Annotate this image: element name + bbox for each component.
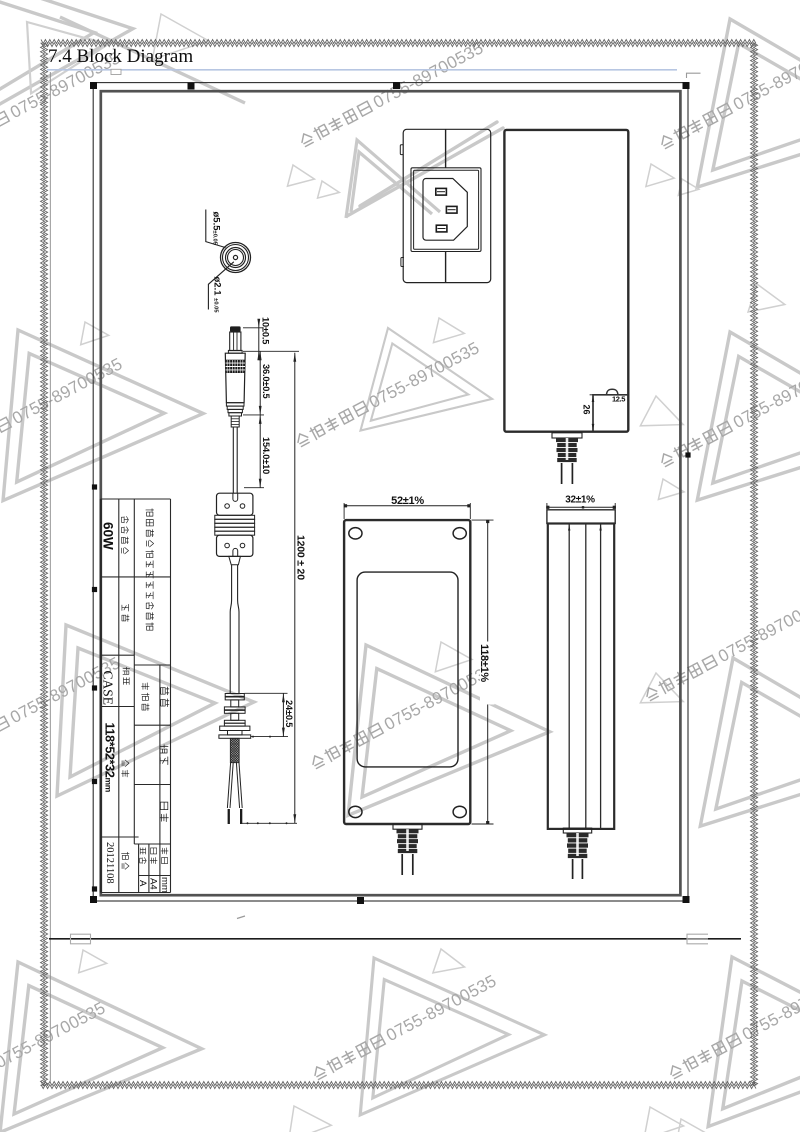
svg-text:7.4 Block Diagram: 7.4 Block Diagram xyxy=(48,46,193,67)
svg-text:1200 ± 20: 1200 ± 20 xyxy=(295,535,307,580)
svg-text:20121108: 20121108 xyxy=(104,842,115,884)
svg-text:A4: A4 xyxy=(148,878,159,890)
svg-text:12.5: 12.5 xyxy=(612,395,625,404)
svg-text:26: 26 xyxy=(582,405,592,415)
svg-text:154.0±10: 154.0±10 xyxy=(261,437,271,474)
svg-text:24±0.5: 24±0.5 xyxy=(284,700,294,727)
svg-text:60W: 60W xyxy=(101,522,116,550)
svg-text:118*52*32mm: 118*52*32mm xyxy=(103,723,117,793)
svg-text:118±1%: 118±1% xyxy=(478,644,490,682)
svg-text:52±1%: 52±1% xyxy=(391,495,424,507)
svg-text:32±1%: 32±1% xyxy=(565,495,595,506)
svg-text:36.0±0.5: 36.0±0.5 xyxy=(261,364,271,399)
svg-text:A: A xyxy=(137,880,148,887)
svg-text:CASE: CASE xyxy=(101,671,116,706)
svg-text:mm: mm xyxy=(159,877,170,893)
svg-text:10±0.5: 10±0.5 xyxy=(261,317,271,344)
